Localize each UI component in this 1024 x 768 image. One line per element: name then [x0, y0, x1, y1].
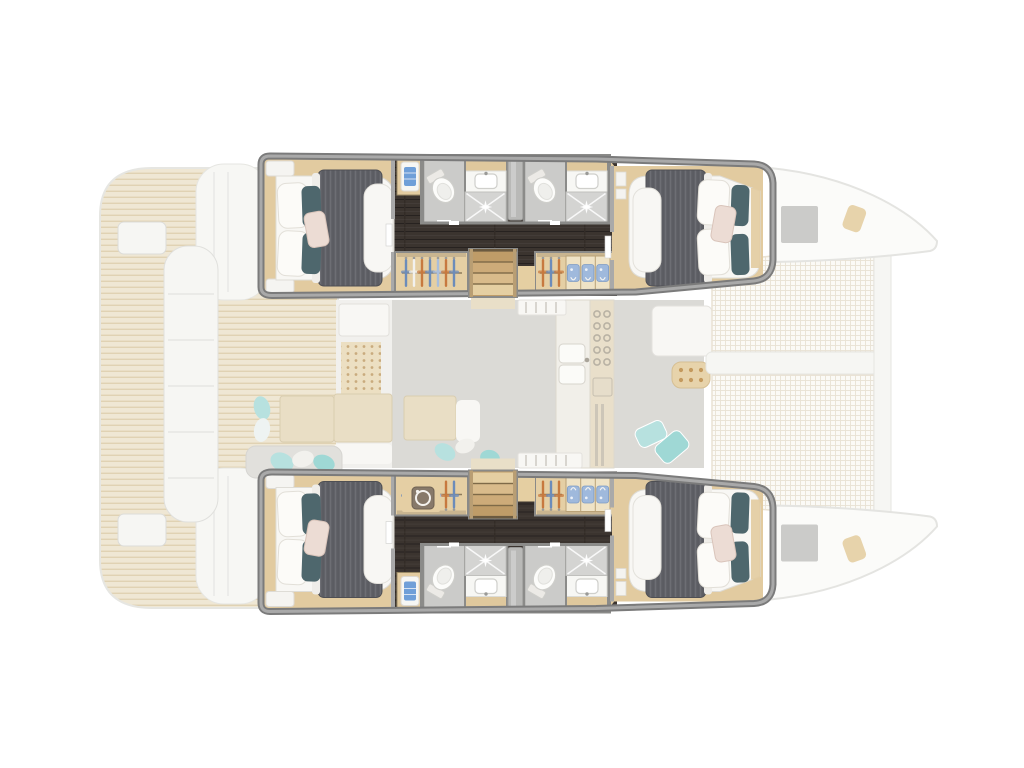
fridge-vents	[601, 404, 604, 466]
dinette-seat	[456, 400, 480, 442]
galley-sink	[559, 365, 585, 384]
starboard-hull-accommodation	[261, 471, 773, 613]
galley	[556, 300, 614, 468]
bow-hull-starboard	[770, 506, 937, 600]
saloon-bench	[334, 444, 392, 464]
boarding-plank-port	[118, 222, 166, 254]
forward-crossbeam	[874, 245, 891, 523]
forward-lounge-seat	[652, 306, 712, 356]
foredeck-walkway	[706, 352, 878, 374]
faucet-icon	[585, 358, 590, 363]
dinette-table	[404, 396, 456, 440]
cockpit-sofa	[164, 246, 218, 522]
oven-icon	[593, 378, 612, 396]
floorplan-canvas	[0, 0, 1024, 768]
saloon-table	[334, 394, 392, 442]
galley-sink	[559, 344, 585, 363]
entry-steps-starboard	[518, 453, 582, 468]
cockpit-tray	[672, 362, 710, 388]
nav-station	[339, 304, 389, 336]
cockpit-table	[280, 396, 334, 442]
boarding-plank-starboard	[118, 514, 166, 546]
bow-hull-port	[770, 168, 937, 262]
fridge-vents	[595, 404, 598, 466]
washing-machine-icon	[402, 480, 440, 512]
speaker-panel-dots	[341, 342, 381, 394]
port-hull-accommodation	[261, 156, 773, 298]
catamaran-floorplan	[0, 0, 1024, 768]
